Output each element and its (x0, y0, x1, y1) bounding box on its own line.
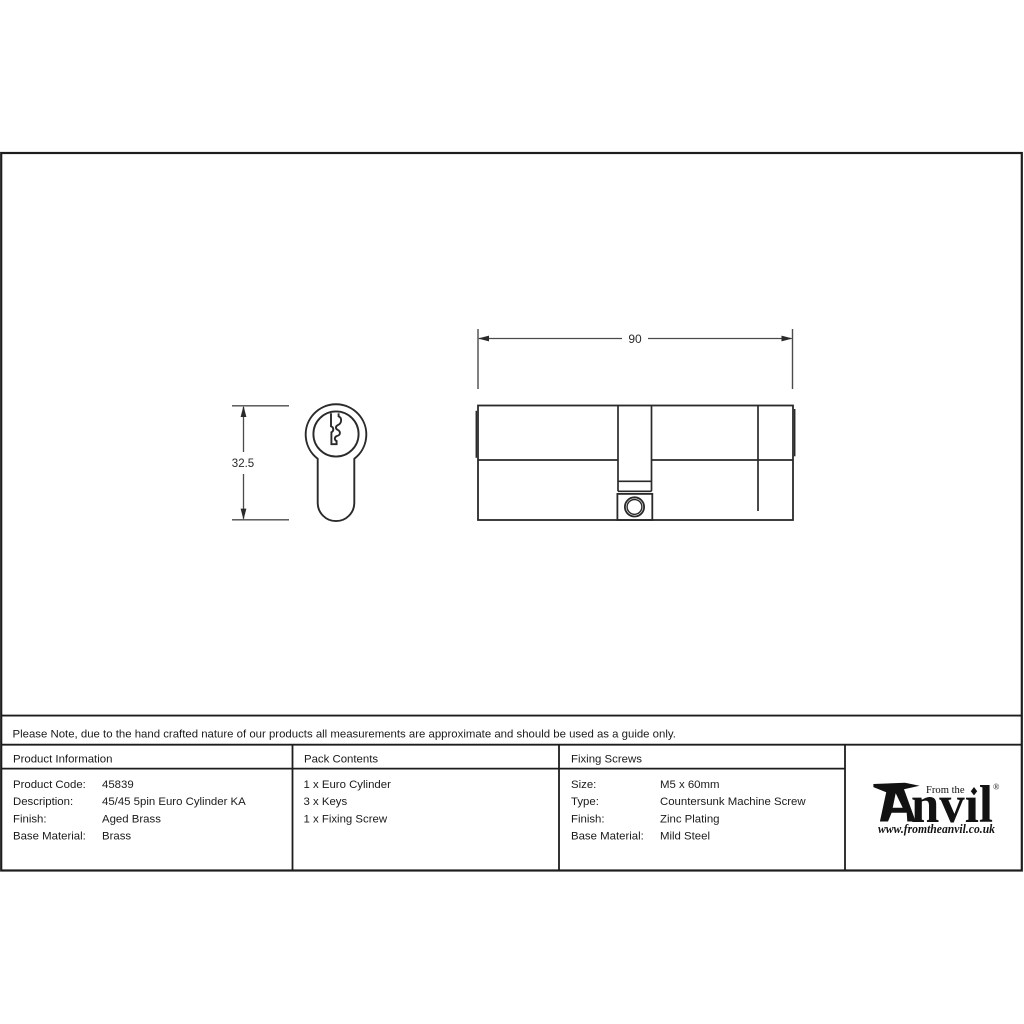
svg-text:Type:: Type: (571, 796, 599, 808)
svg-text:Product Code:: Product Code: (13, 779, 86, 791)
svg-text:32.5: 32.5 (232, 458, 254, 470)
svg-text:Aged Brass: Aged Brass (102, 813, 161, 825)
svg-text:90: 90 (628, 332, 642, 346)
svg-text:45839: 45839 (102, 779, 134, 791)
svg-text:Finish:: Finish: (571, 813, 605, 825)
svg-text:3 x Keys: 3 x Keys (304, 796, 348, 808)
svg-text:Description:: Description: (13, 796, 73, 808)
svg-text:Pack Contents: Pack Contents (304, 754, 378, 766)
svg-text:Brass: Brass (102, 831, 131, 843)
svg-text:M5 x 60mm: M5 x 60mm (660, 779, 720, 791)
svg-text:www.fromtheanvil.co.uk: www.fromtheanvil.co.uk (878, 821, 995, 836)
svg-text:®: ® (993, 782, 1000, 792)
svg-text:1 x Euro Cylinder: 1 x Euro Cylinder (304, 779, 392, 791)
svg-text:From the: From the (926, 785, 965, 796)
svg-text:Please Note, due to the hand c: Please Note, due to the hand crafted nat… (13, 729, 676, 741)
svg-text:Fixing Screws: Fixing Screws (571, 754, 642, 766)
svg-text:45/45 5pin Euro Cylinder KA: 45/45 5pin Euro Cylinder KA (102, 796, 246, 808)
svg-text:Base Material:: Base Material: (571, 831, 644, 843)
svg-text:1 x Fixing Screw: 1 x Fixing Screw (304, 813, 388, 825)
svg-text:Product Information: Product Information (13, 754, 112, 766)
svg-text:Finish:: Finish: (13, 813, 47, 825)
svg-text:Size:: Size: (571, 779, 596, 791)
svg-text:Zinc Plating: Zinc Plating (660, 813, 720, 825)
svg-text:Base Material:: Base Material: (13, 831, 86, 843)
svg-text:Mild Steel: Mild Steel (660, 831, 710, 843)
svg-text:Countersunk Machine Screw: Countersunk Machine Screw (660, 796, 806, 808)
